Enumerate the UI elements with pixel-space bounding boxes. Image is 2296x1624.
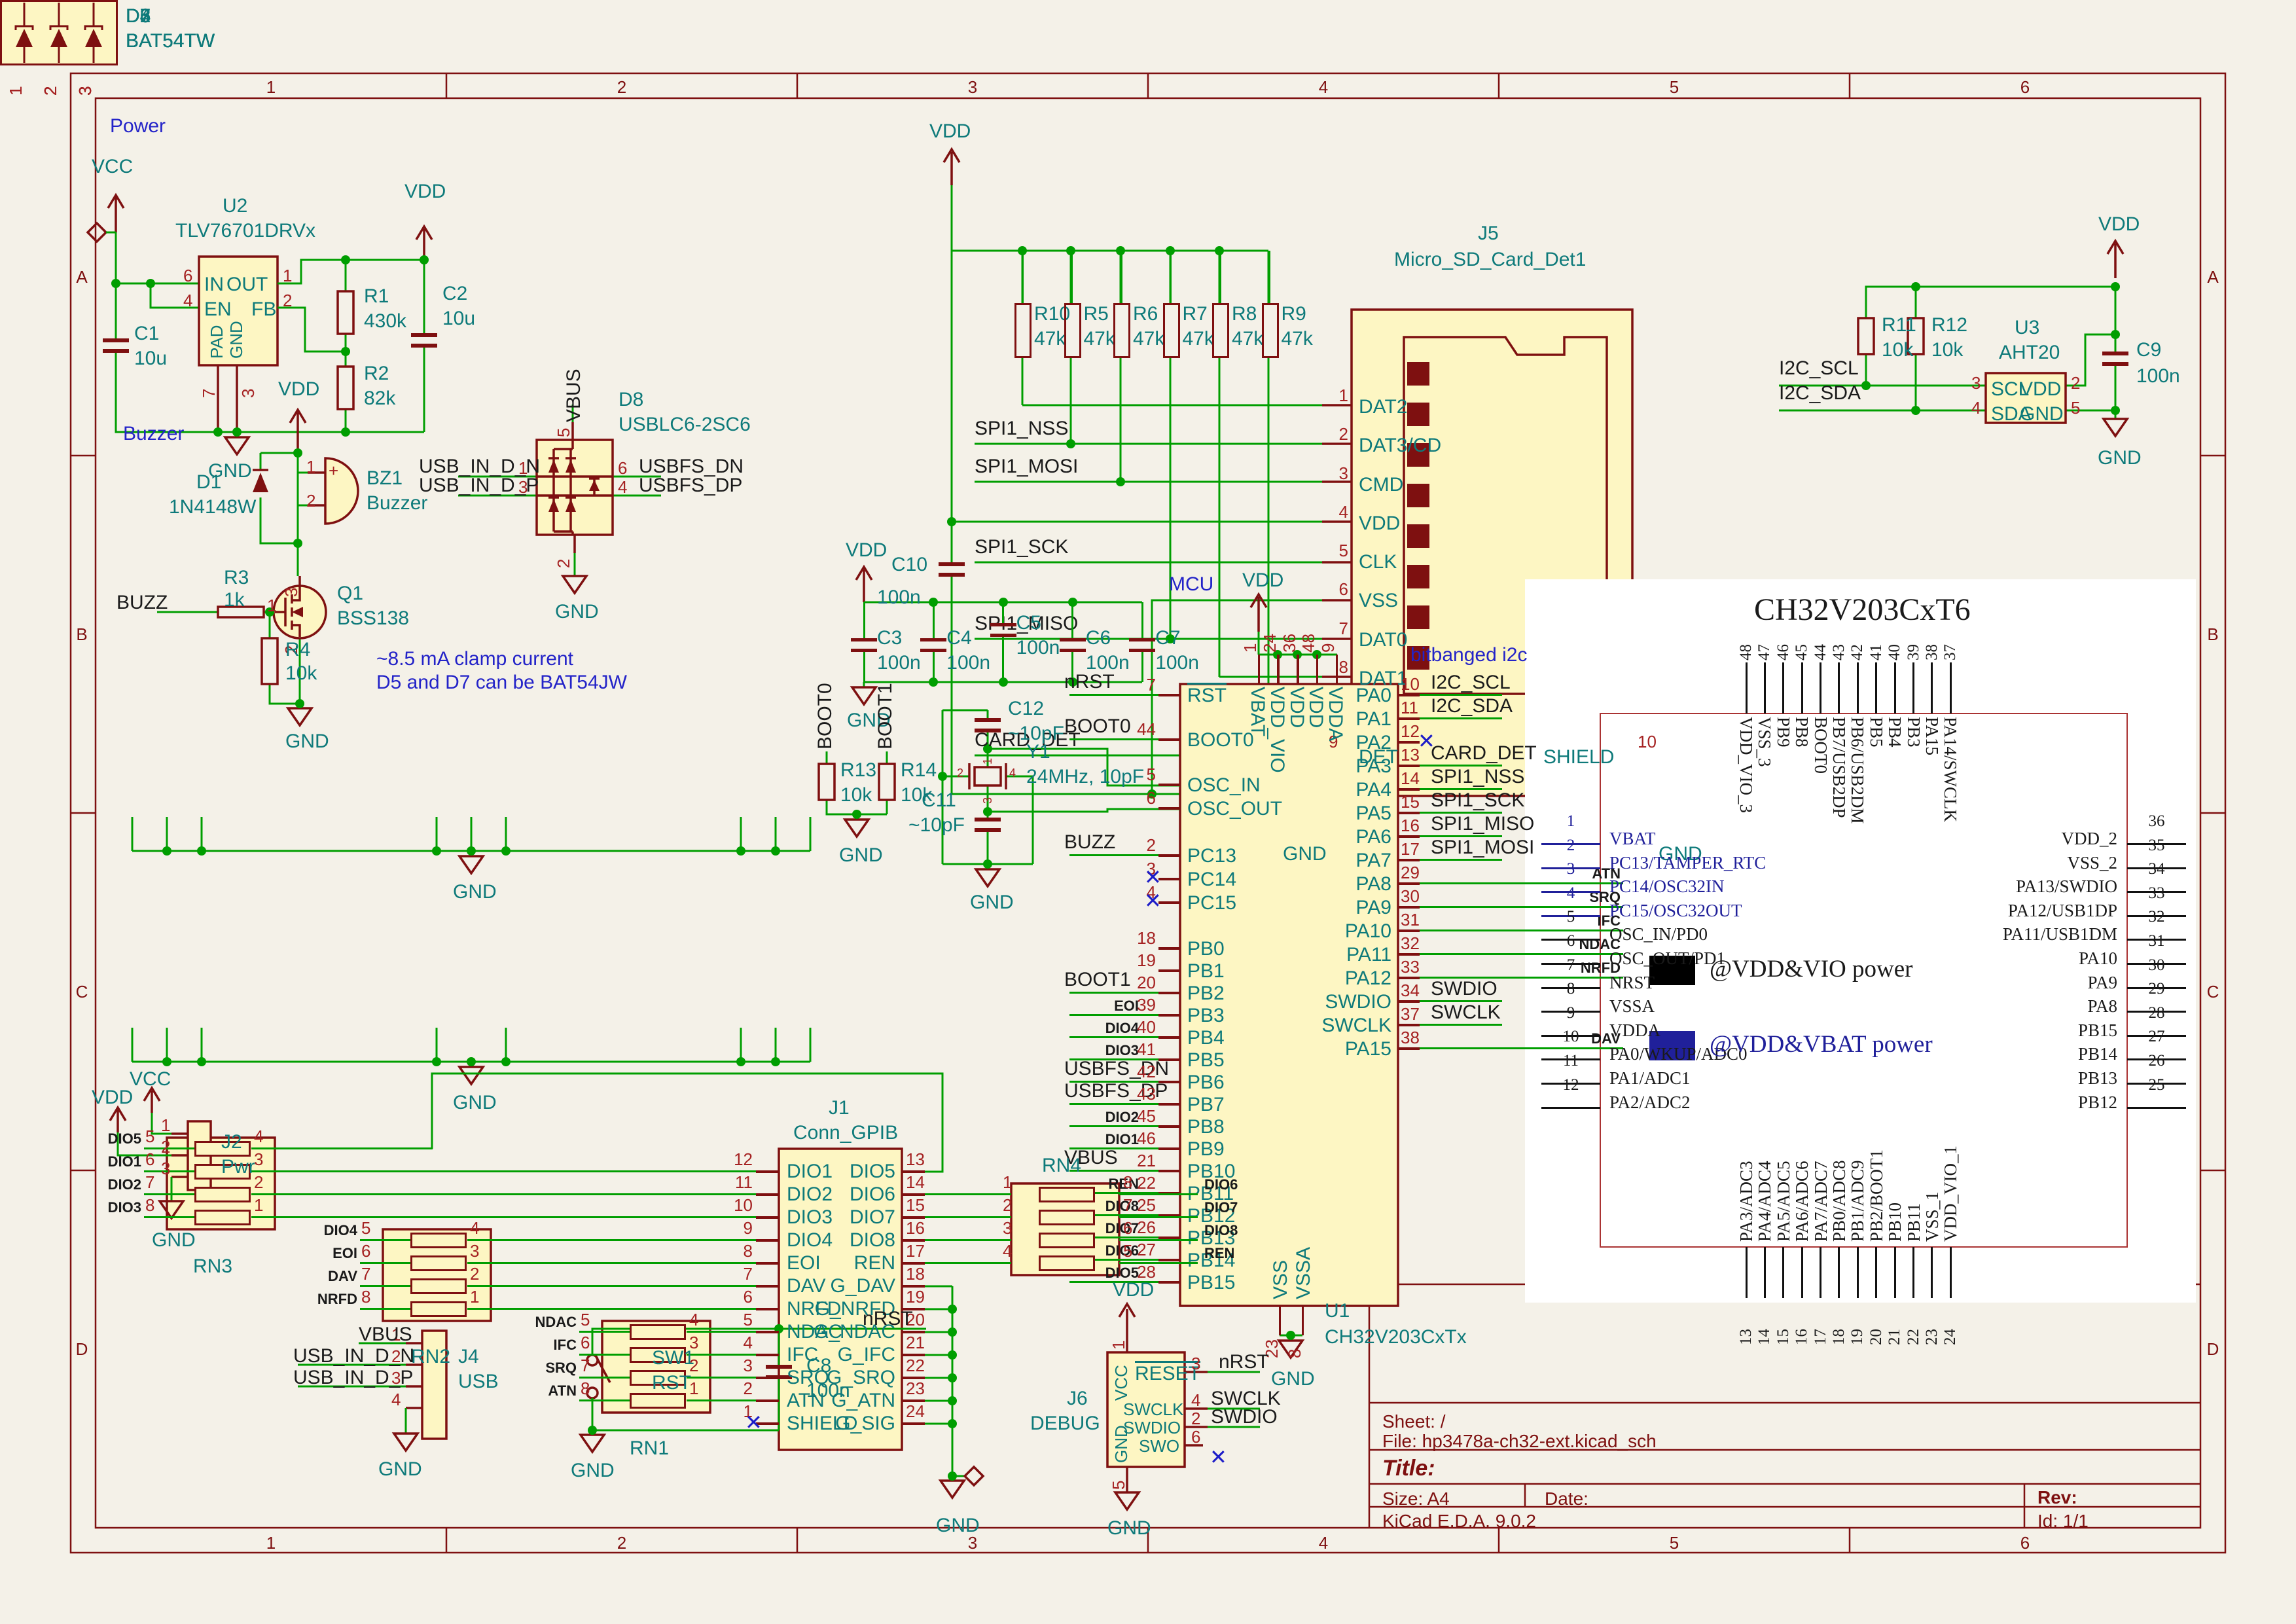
pin-name: PA4 [1306,780,1391,800]
pin-name: PB8 [1187,1117,1225,1137]
pin-name: PA1/ADC1 [1609,1070,1691,1087]
net-label: DIO7 [1204,1200,1263,1215]
net-label: IFC [527,1338,577,1352]
pin-number: 18 [1831,1329,1847,1345]
wire [467,1285,756,1287]
c2-value: 10u [442,309,475,329]
pin-line [1801,1247,1803,1298]
frame-column-label: 6 [1850,77,2200,98]
wire [251,1216,756,1218]
y1-ref: Y1 [1026,742,1050,762]
pin-stub [1158,1103,1180,1106]
pin-line [1838,1247,1840,1298]
resistor-row: DIO4 5 4 [308,1229,785,1252]
r11-ref: R11 [1882,316,1916,335]
pin-name: SWCLK [1306,1016,1391,1036]
c10-ref: C10 [891,555,927,575]
pin-number: 8 [581,1380,590,1397]
pin: 15 PA5/ADC5 [1774,1247,1793,1352]
cap-plate [990,623,1016,626]
pin-number: 8 [361,1288,370,1305]
pin-stub [1158,947,1180,950]
gnd-label: GND [936,1516,980,1536]
pin-name: PA7 [1306,851,1391,871]
net-label: nRST [1064,672,1115,692]
cap-plate [1129,638,1155,641]
pin-line [1931,662,1933,713]
pin-stub [1398,694,1420,696]
spi1-nss-label: SPI1_NSS [975,419,1068,439]
r14-ref: R14 [901,761,937,780]
pullup-resistor: R7 47k [1162,251,1211,362]
sw1-value: RST [652,1373,691,1393]
wire [925,1193,1011,1195]
pullup-resistor: R9 47k [1261,251,1310,362]
pin-number: 32 [1401,935,1420,952]
pin-name: PC15 [1187,893,1236,913]
pin-number: 41 [1130,1041,1156,1058]
pin-stub [1398,1024,1420,1026]
pin-name: VDDA [1609,1022,1660,1039]
gnd-label: GND [152,1231,196,1250]
spi1-sck-label: SPI1_SCK [975,537,1068,557]
net-label: I2C_SCL [1431,673,1511,693]
q1-pin3-num: 3 [283,588,300,597]
y1-pin1-num: 1 [982,758,994,765]
power-pin: 24 VDD_VIO [1268,573,1288,684]
pin-stub [1398,929,1420,932]
wire [144,1216,194,1218]
pin-number: 22 [1905,1329,1922,1345]
pin: 23 VSS_1 [1923,1247,1941,1352]
pin-name: PB13 [1898,1070,2117,1087]
pin-stub [1158,1281,1180,1284]
pin-name: DAT3/CD [1359,436,1441,456]
pin-number: 19 [906,1288,925,1305]
gnd-label: GND [453,882,497,902]
d8-pin4-num: 4 [618,478,627,496]
wire [925,1262,1011,1264]
pin-number: 30 [2135,957,2178,973]
pin-stub [1279,1306,1282,1335]
cap-ref: C7 [1155,628,1180,648]
pin-name: PB9 [1774,717,1792,748]
pin-name: PA15 [1306,1039,1391,1059]
pin-number: 44 [1130,721,1156,738]
gnd-label: GND [555,602,599,622]
pin-row: 18 G_DAV [902,1274,1138,1297]
pin-name: PC14 [1187,870,1236,890]
net-label: DIO6 [1204,1178,1263,1192]
pin-number: 14 [1401,770,1420,787]
wire [467,1308,756,1310]
cap-value: 100n [1086,653,1130,673]
d8-pin5-num: 5 [555,428,572,437]
pin-number: 4 [1549,885,1592,901]
note-power: Power [110,117,166,136]
pin-row: 20 G_NDAC [902,1320,1138,1343]
pin-name: PB9 [1187,1140,1225,1159]
pin-row: 1 DAT2 [1329,389,1492,428]
cap-value: 100n [946,653,990,673]
gnd-label: GND [839,846,883,865]
c1-ref: C1 [134,324,159,344]
pin-name: PB0/ADC8 [1831,1160,1848,1242]
pin-name: PA6/ADC6 [1793,1161,1811,1242]
net-label: BUZZ [1064,833,1115,852]
no-connect-icon: ✕ [1144,890,1162,911]
pin-number: 29 [1401,864,1420,881]
pin-line [1875,662,1877,713]
pin-name: PB5 [1187,1051,1225,1070]
pin-number: 1 [1549,813,1592,829]
pin-name: CMD [1359,475,1403,495]
gnd-label: GND [1271,1369,1315,1389]
u2-pin1-num: 1 [283,267,292,284]
net-label: SPI1_SCK [1431,791,1524,810]
pin-number: 21 [906,1334,925,1351]
pin-number: 48 [1738,644,1754,660]
pin-line [1912,662,1914,713]
pin-name: PB6/USB2DM [1848,717,1866,824]
pin-number: 1 [1242,643,1259,653]
pin-name: VDD [2020,380,2061,399]
vdd-power-label: VDD [929,122,971,141]
pin-number: 24 [1261,634,1278,653]
d1-value: 1N4148W [169,497,256,517]
wire [1420,859,1502,861]
pin-stub [1398,812,1420,814]
u2-pin4-num: 4 [183,292,192,309]
pin-number: 42 [1849,644,1865,660]
pin-number: 3 [1549,861,1592,877]
wire [1119,1262,1198,1264]
cap-value: 100n [877,653,921,673]
j6-value: DEBUG [1030,1414,1100,1434]
pin-row: 4 VDD [1329,506,1492,545]
tool-field: KiCad E.D.A. 9.0.2 [1382,1512,1536,1530]
pin-number: 5 [1123,1242,1132,1259]
resistor-value: 47k [1034,329,1066,349]
pin-number: 46 [1130,1130,1156,1147]
pin-name: PA2/ADC2 [1609,1094,1691,1111]
wire [467,1239,756,1241]
pin-row: 1 SHIELD ✕ [556,1412,779,1435]
pin-number: 24 [1942,1329,1958,1345]
pin-number: 43 [1130,1085,1156,1102]
resistor-ref: R5 [1084,304,1109,324]
mcu-bottom-pins: 23 VSS 8 VSSA [1268,1306,1314,1365]
pin-number: 6 [1549,933,1592,949]
rn2-ref: RN2 [411,1347,450,1367]
pin-number: 5 [145,1128,154,1145]
pin-line [1746,662,1748,713]
pin-stub [1336,655,1338,684]
pin-number: 5 [581,1311,590,1328]
diode-array: DIO8 6 ✕ 5 ✕ REN 4 ✕ 1 2 3 D7 BAT54TW [0,0,118,65]
pin-number: 7 [1130,676,1156,693]
pin-number: 5 [2071,399,2080,416]
frame-row-label: A [2203,98,2223,456]
note-mcu: MCU [1169,575,1213,594]
j1-value: Conn_GPIB [793,1123,898,1143]
resistor-body [194,1210,251,1225]
j6-ref: J6 [1067,1389,1088,1409]
resistor-body [1039,1187,1095,1202]
pin-number: 5 [1110,1481,1127,1490]
resistor-body [1163,303,1180,358]
pin-name: OSC_IN/PD0 [1609,926,1708,943]
u2-pin3-num: 3 [240,389,257,398]
pin-line [1801,662,1803,713]
r4-value: 10k [285,664,317,683]
d8-pin2-num: 2 [555,559,572,568]
pin-name: DAT0 [1359,630,1407,650]
j1-ref: J1 [829,1098,850,1118]
pin-stub [1398,1047,1420,1050]
c11-ref: C11 [922,791,956,810]
boot0-net-label: BOOT0 [816,683,835,749]
usb-in-dp-label: USB_IN_D_P [293,1368,413,1388]
u2-pin6-num: 6 [183,267,192,284]
d8-ref: D8 [619,390,643,410]
pin: 19 PB1/ADC9 [1848,1247,1867,1352]
cap-ref: C3 [877,628,902,648]
pin-row: 19 G_NRFD [902,1297,1138,1320]
c12-ref: C12 [1008,699,1044,719]
net-label: DIO4 [308,1223,357,1238]
frame-column-label: 6 [1850,1533,2200,1553]
vdd-power-label: VDD [92,1088,133,1108]
resistor-body [1039,1233,1095,1248]
resistor-row: 4 5 REN [902,1252,1259,1274]
c9-ref: C9 [2136,340,2161,360]
rn3-network: DIO5 5 4 DIO1 6 3 DIO2 7 2 DIO3 8 1 [92,1137,785,1229]
pin: 22 PB11 [1905,1247,1923,1352]
pin-number: 7 [1549,957,1592,973]
i2c-sda-label: I2C_SDA [1779,384,1861,403]
resistor-body [1039,1255,1095,1271]
pin-name: VDD_2 [1898,830,2117,848]
pullup-resistor: R10 47k [1013,251,1063,362]
wire [1002,637,1004,682]
net-label: DIO2 [92,1178,141,1192]
d1-ref: D1 [196,473,221,492]
net-label: NRFD [308,1292,357,1307]
q1-ref: Q1 [337,584,363,604]
wire [251,1147,433,1149]
pin-name: OSC_OUT/PD1 [1609,950,1725,967]
u2-value: TLV76701DRVx [175,221,315,241]
pin-number: 19 [1130,952,1156,969]
pullup-resistor: R6 47k [1112,251,1162,362]
pin-number: 17 [1401,840,1420,857]
pin-number: 39 [1130,996,1156,1013]
usbfs-dn-label: USBFS_DN [639,457,744,477]
pin-name: PA12 [1306,969,1391,988]
pin-stub [1158,878,1180,880]
size-field: Size: A4 [1382,1490,1450,1508]
pin-name: SWDIO [1306,992,1391,1012]
c1-value: 10u [134,349,167,369]
net-label: NDAC [527,1315,577,1329]
frame-column-label: 4 [1148,77,1499,98]
pin-name: VSS_3 [1755,717,1773,767]
power-pin: 36 VDD [1288,573,1308,684]
pin-name: DIO5 [774,1162,895,1182]
pin-stub [1398,977,1420,979]
pin-number: 40 [1886,644,1903,660]
pin-name: PB3 [1905,717,1922,748]
j5-pins: 1 DAT2 2 DAT3/CD 3 CMD 4 VDD 5 CLK 6 VSS… [1329,389,1492,700]
pin-line [1782,662,1784,713]
pin-name: SWCLK [1123,1401,1183,1418]
u2-pin-in: IN [204,275,224,295]
pin-name: PB6 [1187,1073,1225,1092]
pin-name: PB2/BOOT1 [1868,1149,1886,1242]
pin-name: PA3/ADC3 [1738,1161,1755,1242]
sw1-ref: SW1 [652,1348,694,1368]
y1-pin2-num: 2 [957,767,963,779]
pin-number: 25 [2135,1077,2178,1093]
c8-value: 100n [806,1381,850,1401]
pin-stub [1398,788,1420,791]
c8-ref: C8 [806,1356,831,1376]
resistor-row: DIO1 6 3 [92,1160,785,1183]
pin-name: PA5 [1306,804,1391,823]
pin-name: VSS [1359,591,1398,611]
resistor-body [630,1324,686,1340]
pin-name: PA9 [1306,898,1391,918]
net-label: SWCLK [1431,1003,1501,1022]
pin-name: PA9 [1898,974,2117,992]
pin-number: 15 [1775,1329,1791,1345]
net-label: SRQ [527,1361,577,1375]
pin-stub [1316,655,1319,684]
pin-number: 18 [1130,929,1156,947]
d8-pin6-num: 6 [618,460,627,477]
pin-name: PA4/ADC4 [1756,1161,1774,1242]
r2-ref: R2 [364,364,389,384]
pin-number: 3 [1191,1355,1200,1372]
net-label: SPI1_NSS [1431,767,1524,787]
pin-stub [1398,765,1420,767]
pin-number: 42 [1130,1063,1156,1080]
gnd-label: GND [378,1460,422,1479]
diode-value: BAT54TW [126,30,215,52]
j2-ref: J2 [221,1132,242,1152]
pin-name: SWDIO [1123,1419,1181,1436]
power-pin: 48 VDD [1307,573,1327,684]
frame-rows-right: ABCD [2203,98,2223,1528]
pin-stub [1158,1036,1180,1039]
resistor-ref: R7 [1183,304,1208,324]
pin-number: 13 [906,1151,925,1168]
pin-number: 1 [1110,1341,1127,1350]
cap-plate [851,638,877,641]
vdd-power-label: VDD [404,182,446,202]
pin-row: 23 G_ATN [902,1389,1138,1412]
pin-line [1950,1247,1952,1298]
no-connect-icon: ✕ [1210,1447,1227,1468]
frame-row-label: A [72,98,92,456]
pin-line [1764,1247,1766,1298]
c11-value: ~10pF [908,816,965,835]
pin-name: PB5 [1867,717,1885,748]
i2c-scl-label: I2C_SCL [1779,359,1859,378]
nrst-net-label: nRST [1219,1352,1269,1372]
no-connect-icon: ✕ [745,1412,762,1433]
pin-number: 31 [2135,933,2178,949]
id-field: Id: 1/1 [2037,1512,2089,1530]
pin-number: 6 [361,1242,370,1259]
pin-name: VDD_VIO_3 [1737,717,1755,813]
u3-value: AHT20 [1999,343,2060,363]
cap-plate [1060,638,1086,641]
pin-line [1820,1247,1821,1298]
y1-pin3-num: 3 [982,797,994,804]
pin-number: 1 [161,1117,170,1134]
pin-name: VDD_VIO_1 [1942,1146,1960,1242]
pin-stub [1158,1147,1180,1150]
pin-stub [1398,835,1420,838]
pin-number: 4 [1003,1242,1012,1259]
frame-columns-top: 123456 [96,77,2200,98]
pin-row: I2C_SDA 11 PA1 ✕ [1398,707,1634,731]
wire [863,652,865,682]
u2-pin-en: EN [204,300,232,319]
frame-column-label: 2 [446,77,797,98]
mcu-top-pins: 1 VBAT 24 VDD_VIO 36 VDD 48 VDD 9 VDDA [1249,573,1346,684]
pin-name: PB8 [1793,717,1810,748]
gnd-label: GND [970,893,1014,912]
u2-pin7-num: 7 [200,389,217,398]
pin: 25 PB12 [1898,1096,2225,1121]
pin-number: 32 [2135,909,2178,925]
pin-number: 24 [906,1403,925,1420]
nrst-net-label: nRST [863,1309,913,1329]
pin-number: 4 [391,1391,401,1408]
swdio-net-label: SWDIO [1211,1407,1278,1427]
pin-number: 2 [161,1138,170,1155]
pin-stub [1158,854,1180,857]
resistor-body [1113,303,1130,358]
pin-name: DIO7 [774,1208,895,1227]
pin-number: 20 [1130,974,1156,991]
pin-name: PC15/OSC32OUT [1609,902,1742,920]
pin-number: 11 [1401,699,1418,716]
frame-column-label: 1 [96,77,446,98]
pin-number: 37 [1942,644,1958,660]
pin: 17 PA7/ADC7 [1812,1247,1830,1352]
pin-number: 40 [1130,1019,1156,1036]
resistor-body [1064,303,1081,358]
gnd-label: GND [285,732,329,751]
spi1-mosi-label: SPI1_MOSI [975,457,1078,477]
pin-line [1912,1247,1914,1298]
vdd-power-label: VDD [1113,1280,1154,1300]
pin-name: PB7 [1187,1095,1225,1115]
pin-name: BOOT0 [1812,717,1829,774]
pin-number: 33 [1401,958,1420,975]
j5-value: Micro_SD_Card_Det1 [1394,250,1586,270]
wire [925,1239,1011,1241]
resistor-value: 47k [1282,329,1313,349]
pin-number: 23 [1924,1329,1940,1345]
pin-name: PB12 [1898,1094,2117,1111]
pin-line [1894,1247,1896,1298]
wire [579,1399,630,1401]
